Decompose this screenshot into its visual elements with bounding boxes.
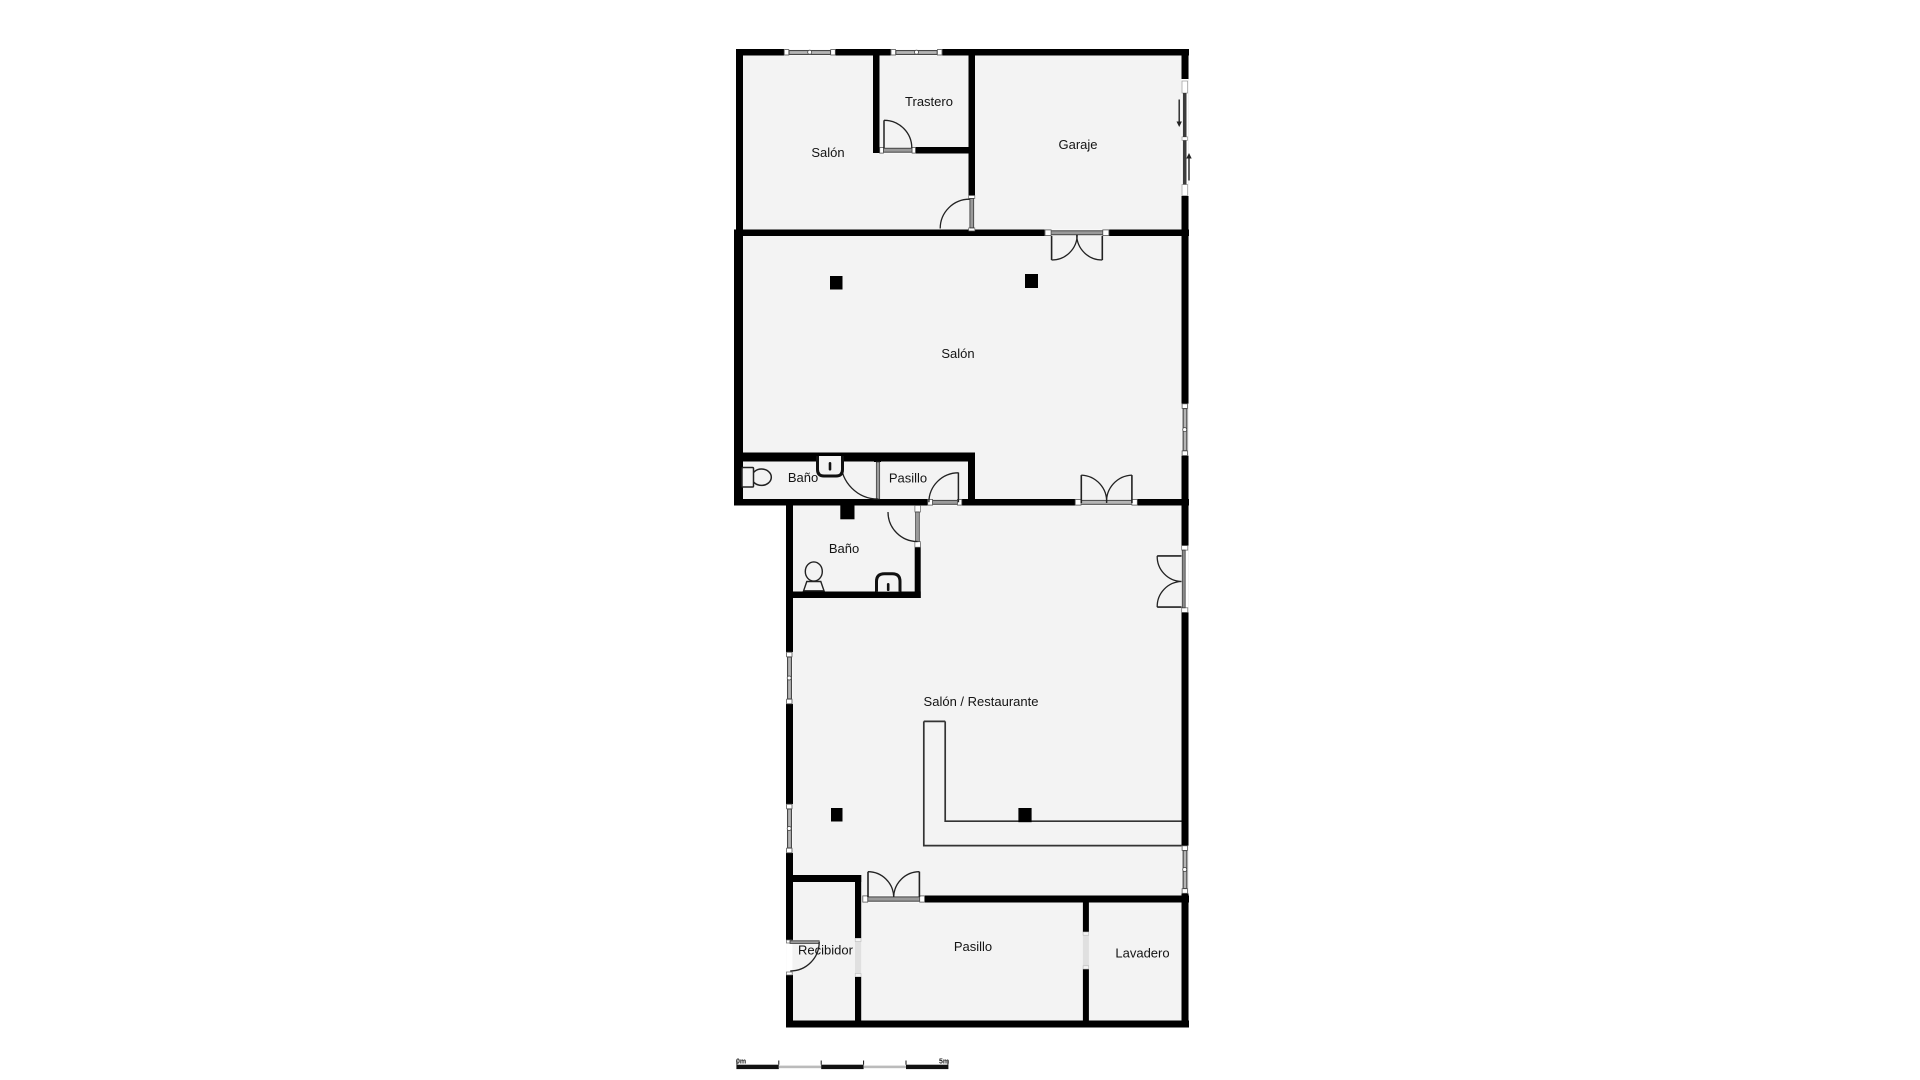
svg-text:Salón: Salón xyxy=(811,145,844,160)
svg-text:5m: 5m xyxy=(939,1059,949,1066)
svg-text:Salón: Salón xyxy=(941,346,974,361)
svg-text:Recibidor: Recibidor xyxy=(798,943,854,958)
svg-text:Lavadero: Lavadero xyxy=(1115,946,1169,961)
svg-text:Pasillo: Pasillo xyxy=(954,939,992,954)
svg-text:Baño: Baño xyxy=(788,470,818,485)
svg-text:Pasillo: Pasillo xyxy=(889,471,927,486)
svg-text:0m: 0m xyxy=(736,1059,746,1066)
svg-text:Garaje: Garaje xyxy=(1058,137,1097,152)
svg-text:Baño: Baño xyxy=(829,541,859,556)
svg-text:Salón / Restaurante: Salón / Restaurante xyxy=(924,694,1039,709)
svg-text:Trastero: Trastero xyxy=(905,94,953,109)
